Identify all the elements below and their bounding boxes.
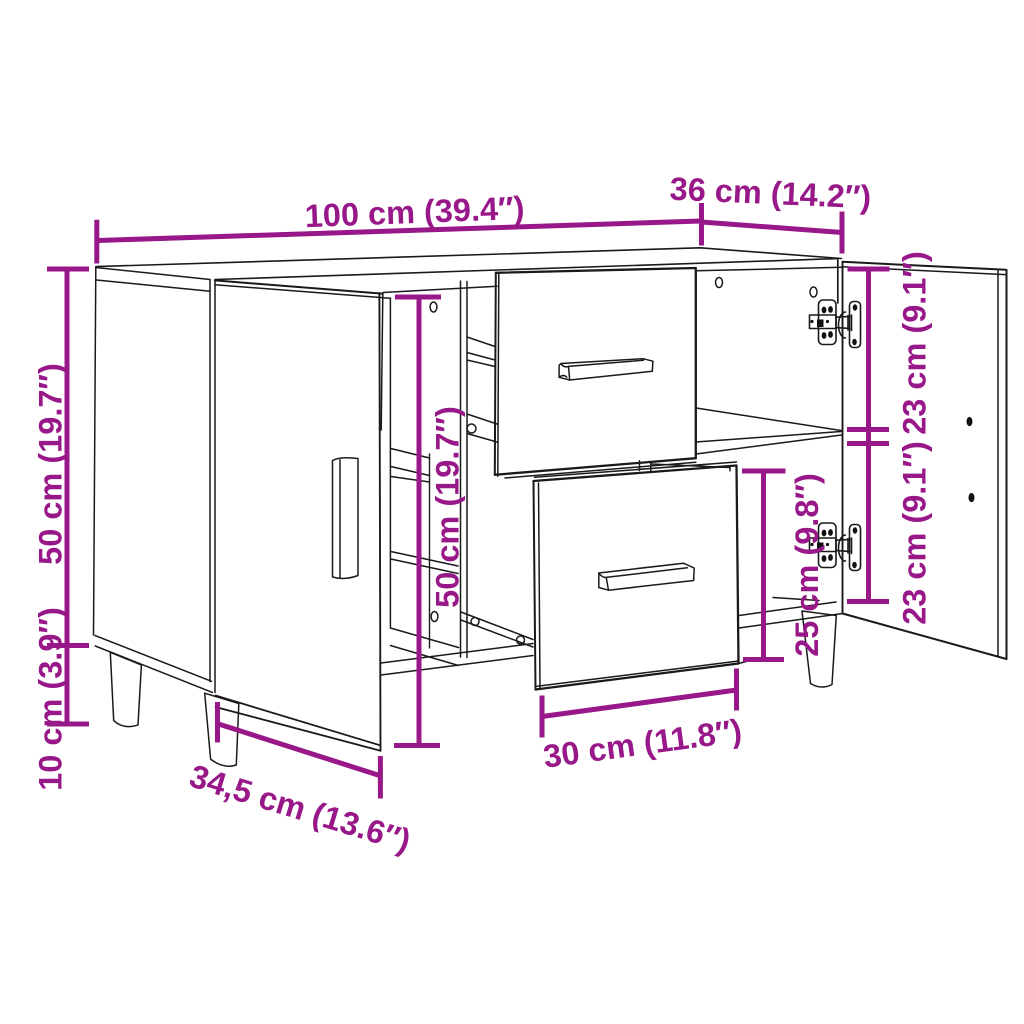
svg-text:23 cm (9.1″): 23 cm (9.1″)	[897, 441, 933, 625]
svg-text:25 cm (9.8″): 25 cm (9.8″)	[789, 473, 825, 657]
svg-text:10 cm (3.9″): 10 cm (3.9″)	[33, 607, 69, 791]
svg-text:30 cm (11.8″): 30 cm (11.8″)	[541, 712, 744, 774]
svg-text:50 cm (19.7″): 50 cm (19.7″)	[33, 363, 69, 565]
svg-text:23 cm (9.1″): 23 cm (9.1″)	[897, 251, 933, 435]
svg-text:50 cm (19.7″): 50 cm (19.7″)	[430, 406, 466, 608]
